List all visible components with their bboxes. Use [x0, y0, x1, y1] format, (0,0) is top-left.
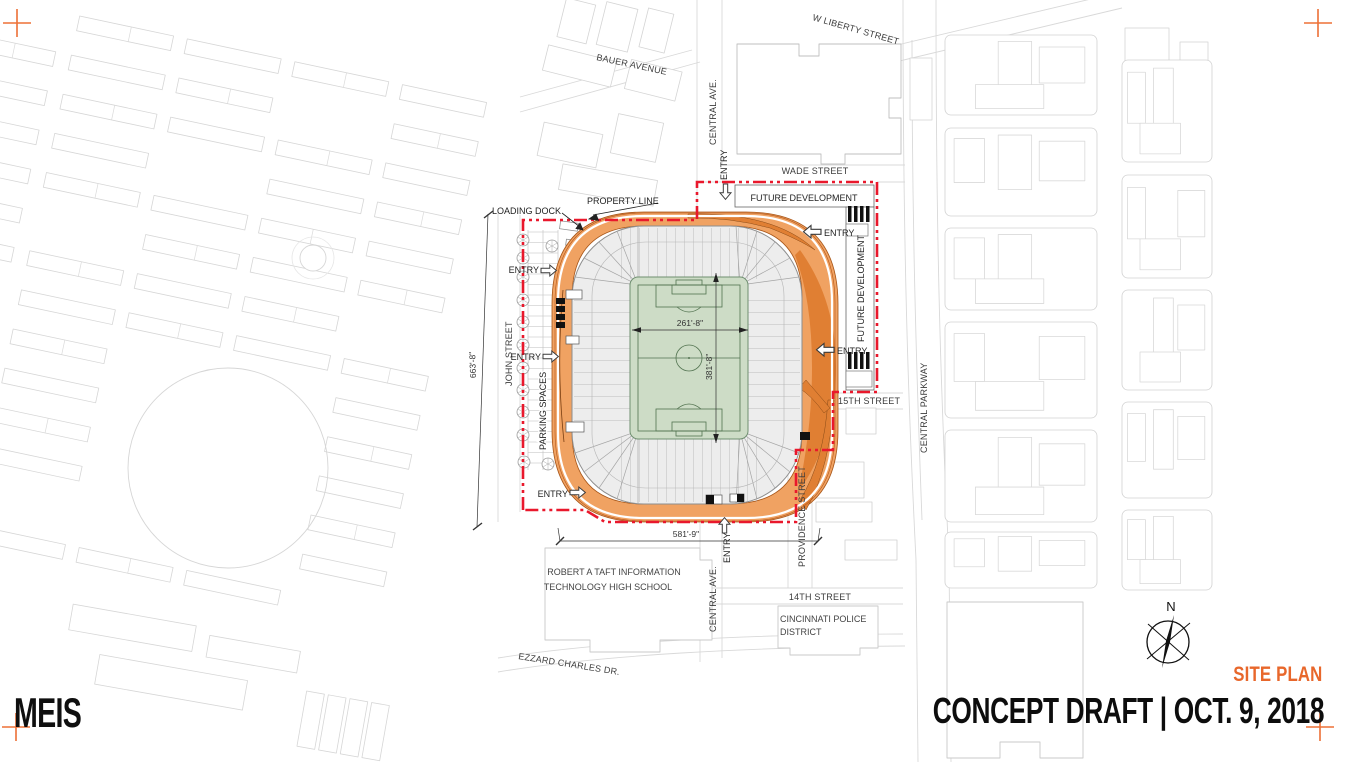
label-police-2: DISTRICT [780, 627, 822, 637]
compass-north-label: N [1166, 599, 1175, 614]
label-wade: WADE STREET [782, 166, 849, 176]
building-music-hall [737, 44, 901, 164]
label-entry-southwest: ENTRY [538, 489, 568, 499]
building-school [545, 548, 712, 652]
label-entry-south: ENTRY [722, 533, 732, 563]
label-ezzard-charles: EZZARD CHARLES DR. [518, 651, 621, 677]
label-central-ave-n: CENTRAL AVE. [708, 79, 718, 145]
label-entry-north: ENTRY [719, 150, 729, 180]
label-future-dev-east: FUTURE DEVELOPMENT [856, 234, 866, 342]
label-providence: PROVIDENCE STREET [797, 466, 807, 567]
sheet-name: SITE PLAN [1233, 663, 1322, 687]
label-police-1: CINCINNATI POLICE [780, 614, 866, 624]
dim-field-width: 261'-8" [677, 318, 703, 328]
site-plan-drawing: W LIBERTY STREET BAUER AVENUE CENTRAL AV… [0, 0, 1350, 762]
building-bottom-right [947, 602, 1083, 758]
dim-site-west: 663'-8" [467, 352, 478, 379]
north-compass-icon: N [1147, 599, 1190, 668]
label-entry-west-1: ENTRY [509, 265, 539, 275]
label-w-liberty: W LIBERTY STREET [811, 12, 900, 46]
label-14th: 14TH STREET [789, 592, 852, 602]
label-entry-west-2: ENTRY [511, 352, 541, 362]
label-central-parkway: CENTRAL PARKWAY [919, 362, 929, 453]
label-property-line: PROPERTY LINE [587, 196, 659, 206]
crosshair-top-left [3, 9, 31, 37]
sheet-title: CONCEPT DRAFT | OCT. 9, 2018 [933, 690, 1324, 732]
label-parking-spaces: PARKING SPACES [538, 372, 548, 450]
label-loading-dock: LOADING DOCK [492, 206, 561, 216]
soccer-pitch [630, 277, 748, 439]
label-entry-east-2: ENTRY [837, 346, 867, 356]
label-future-dev-top: FUTURE DEVELOPMENT [750, 193, 858, 203]
dim-field-length: 381'-8" [704, 354, 714, 380]
site-plan-sheet: W LIBERTY STREET BAUER AVENUE CENTRAL AV… [0, 0, 1350, 762]
dim-site-south: 581'-9" [673, 529, 699, 539]
label-central-ave-s: CENTRAL AVE. [708, 566, 718, 632]
label-school-2: TECHNOLOGY HIGH SCHOOL [544, 582, 672, 592]
label-school-1: ROBERT A TAFT INFORMATION [547, 567, 681, 577]
label-15th: 15TH STREET [838, 396, 901, 406]
crosshair-top-right [1304, 9, 1332, 37]
circular-street [128, 368, 328, 568]
label-entry-east-1: ENTRY [824, 228, 854, 238]
meis-logo: MEIS [14, 689, 81, 737]
